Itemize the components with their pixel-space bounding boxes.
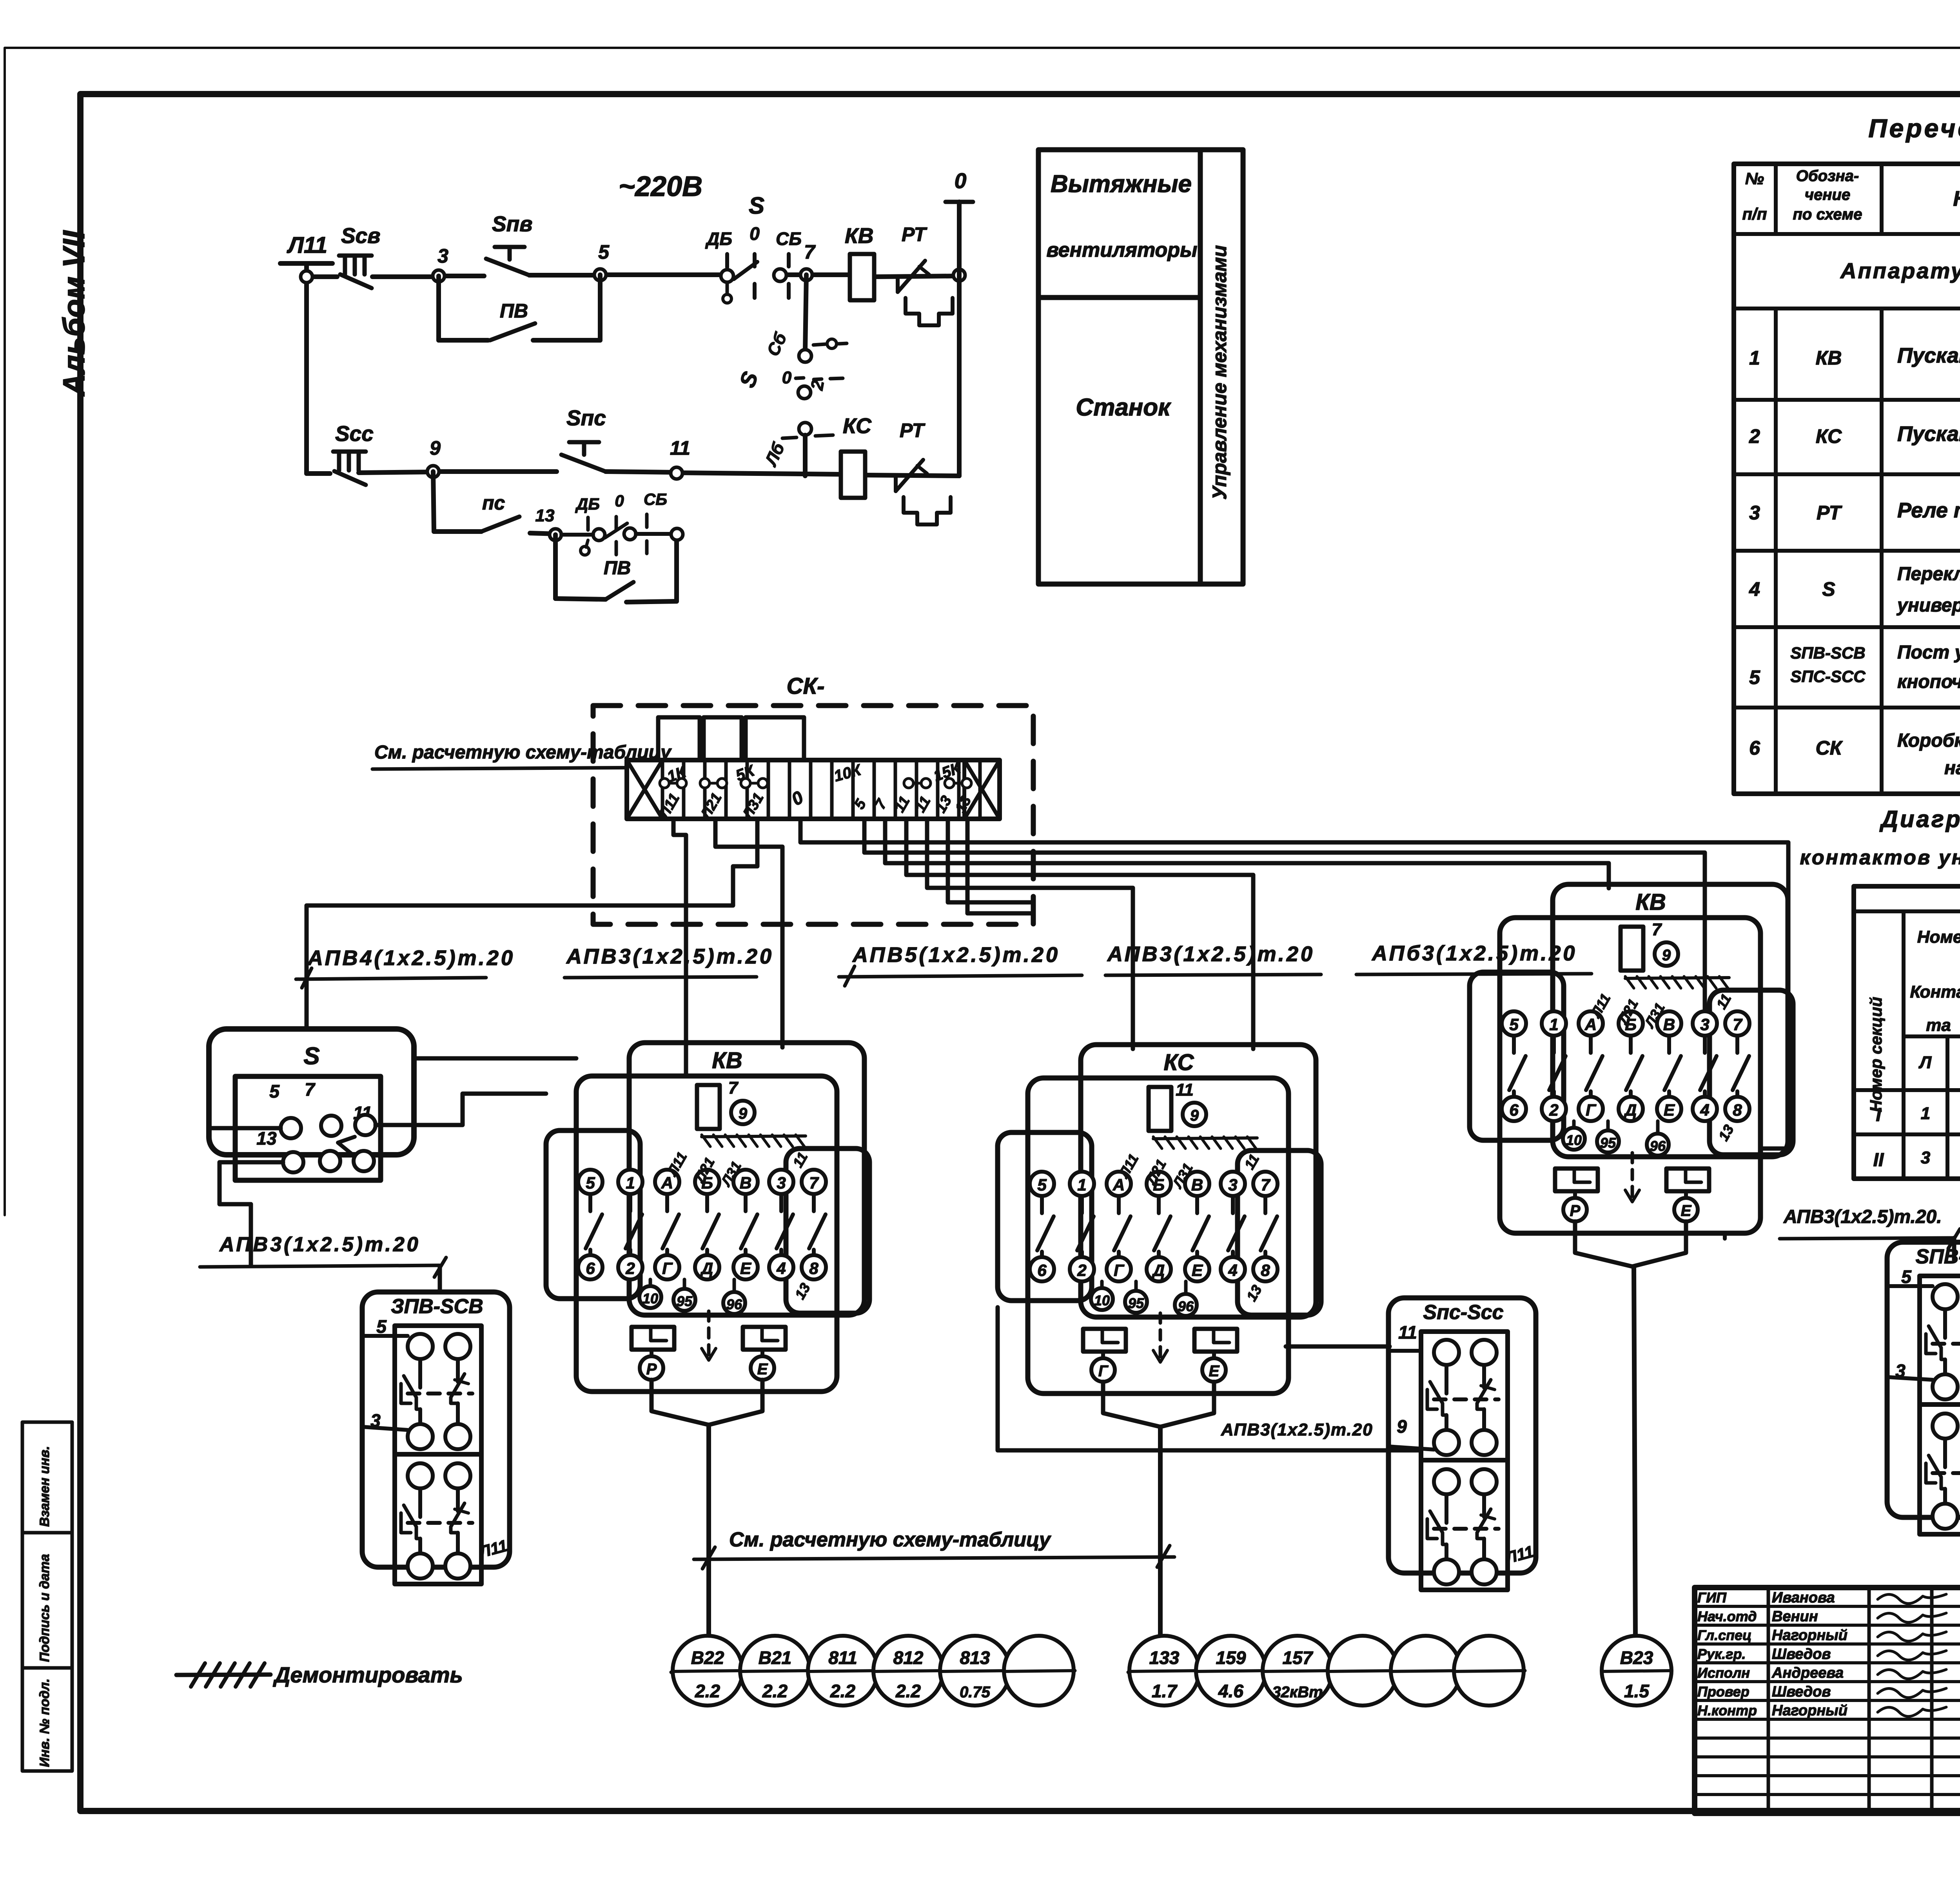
svg-text:АПб3(1х2.5)т.20: АПб3(1х2.5)т.20 — [1371, 942, 1577, 965]
svg-text:Д: Д — [1152, 1261, 1165, 1279]
svg-text:0: 0 — [782, 368, 792, 387]
svg-text:КВ: КВ — [1816, 347, 1842, 369]
svg-text:9: 9 — [430, 437, 441, 459]
svg-text:10: 10 — [1566, 1132, 1582, 1148]
svg-text:96: 96 — [726, 1296, 742, 1312]
svg-text:ГИП: ГИП — [1697, 1590, 1727, 1606]
svg-text:Г: Г — [662, 1259, 673, 1277]
svg-text:В21: В21 — [759, 1648, 791, 1668]
svg-text:7: 7 — [728, 1078, 739, 1098]
svg-text:Гл.спец: Гл.спец — [1697, 1627, 1751, 1643]
svg-text:7: 7 — [1652, 920, 1662, 939]
svg-text:Д: Д — [700, 1259, 713, 1277]
svg-text:Д: Д — [1624, 1101, 1637, 1119]
svg-text:КВ: КВ — [1635, 889, 1666, 915]
svg-text:контактов универсального пер: контактов универсального переключателя — [1800, 846, 1960, 869]
svg-text:5: 5 — [1509, 1015, 1519, 1034]
svg-text:5: 5 — [269, 1081, 280, 1101]
svg-text:АПВ3(1х2.5)т.20: АПВ3(1х2.5)т.20 — [219, 1233, 421, 1256]
svg-text:АПВ3(1х2.5)т.20: АПВ3(1х2.5)т.20 — [566, 945, 774, 968]
svg-text:9: 9 — [1662, 947, 1671, 964]
svg-text:КВ: КВ — [712, 1048, 742, 1073]
svg-text:11: 11 — [1398, 1322, 1417, 1343]
svg-text:4: 4 — [1228, 1261, 1237, 1279]
svg-text:СК-: СК- — [787, 673, 825, 699]
svg-text:Инв. № подл.: Инв. № подл. — [37, 1678, 52, 1767]
svg-text:4.6: 4.6 — [1218, 1681, 1243, 1701]
svg-text:2.2: 2.2 — [895, 1681, 921, 1701]
svg-text:КС: КС — [1164, 1050, 1194, 1075]
svg-text:АПВ3(1х2.5)т.20.: АПВ3(1х2.5)т.20. — [1783, 1207, 1942, 1227]
svg-text:~220В: ~220В — [619, 171, 702, 202]
svg-text:РТ: РТ — [902, 223, 927, 245]
svg-text:0.75: 0.75 — [960, 1684, 991, 1701]
svg-text:1.7: 1.7 — [1152, 1681, 1178, 1701]
svg-text:I: I — [1876, 1105, 1882, 1125]
svg-text:Sпс: Sпс — [566, 406, 606, 430]
svg-text:4: 4 — [1700, 1101, 1709, 1119]
svg-text:АПВ5(1х2.5)т.20: АПВ5(1х2.5)т.20 — [852, 943, 1060, 967]
svg-text:5: 5 — [1901, 1267, 1912, 1287]
svg-text:13: 13 — [535, 506, 555, 525]
svg-text:СБ: СБ — [776, 229, 802, 249]
svg-text:Нагорный: Нагорный — [1772, 1627, 1847, 1644]
svg-text:8: 8 — [1733, 1101, 1742, 1119]
svg-text:S: S — [749, 192, 764, 219]
svg-text:Наименование: Наименование — [1953, 187, 1960, 210]
svg-text:Рук.гр.: Рук.гр. — [1697, 1646, 1746, 1662]
svg-text:3: 3 — [1921, 1148, 1930, 1167]
svg-text:Г: Г — [1114, 1261, 1125, 1279]
svg-text:8: 8 — [809, 1259, 818, 1277]
svg-text:1: 1 — [1749, 347, 1760, 369]
svg-text:7: 7 — [804, 241, 816, 263]
svg-text:Андреева: Андреева — [1771, 1665, 1844, 1681]
svg-text:ЗПВ-SСВ: ЗПВ-SСВ — [391, 1295, 483, 1318]
svg-text:АПВ3(1х2.5)т.20: АПВ3(1х2.5)т.20 — [1107, 942, 1315, 966]
svg-text:КС: КС — [843, 414, 872, 438]
svg-text:Номер: Номер — [1917, 927, 1960, 947]
svg-text:ная: ная — [1944, 758, 1960, 778]
svg-text:2.2: 2.2 — [762, 1681, 788, 1701]
svg-text:В22: В22 — [691, 1648, 724, 1668]
svg-text:Sпс-Scc: Sпс-Scc — [1423, 1301, 1503, 1324]
svg-text:ПВ: ПВ — [500, 300, 528, 322]
svg-text:2: 2 — [1549, 1101, 1558, 1119]
svg-text:А: А — [1112, 1176, 1125, 1194]
svg-text:Подпись и дата: Подпись и дата — [37, 1554, 52, 1662]
svg-text:Sсс: Sсс — [335, 421, 374, 446]
svg-text:6: 6 — [1749, 737, 1760, 759]
svg-text:SПВ-SСВ: SПВ-SСВ — [1916, 1245, 1960, 1268]
svg-text:Управление механизмами: Управление механизмами — [1209, 245, 1230, 499]
svg-text:Е: Е — [1664, 1101, 1675, 1119]
svg-text:9: 9 — [1190, 1107, 1199, 1124]
svg-text:вентиляторы: вентиляторы — [1047, 239, 1198, 261]
svg-text:п/п: п/п — [1742, 205, 1767, 223]
svg-text:Иванова: Иванова — [1772, 1590, 1835, 1606]
svg-text:95: 95 — [677, 1293, 693, 1309]
svg-text:по схеме: по схеме — [1793, 206, 1862, 223]
svg-text:Аппаратура по месту: Аппаратура по месту — [1840, 258, 1960, 283]
svg-text:См. расчетную схему-таблицу: См. расчетную схему-таблицу — [729, 1528, 1052, 1551]
svg-text:2.2: 2.2 — [830, 1681, 855, 1701]
svg-text:S: S — [1822, 578, 1835, 600]
svg-text:II: II — [1873, 1150, 1884, 1170]
svg-text:Р: Р — [646, 1361, 657, 1378]
svg-text:7: 7 — [1733, 1015, 1742, 1034]
svg-text:В: В — [740, 1174, 751, 1192]
svg-text:В: В — [1191, 1176, 1203, 1194]
svg-text:7: 7 — [1261, 1176, 1270, 1194]
svg-text:ДБ: ДБ — [575, 495, 600, 513]
svg-text:Вытяжные: Вытяжные — [1051, 171, 1192, 198]
svg-text:Станок: Станок — [1076, 394, 1171, 421]
svg-text:13: 13 — [256, 1128, 277, 1149]
svg-text:Альбом VII: Альбом VII — [56, 230, 91, 397]
svg-text:Е: Е — [740, 1259, 752, 1277]
svg-text:5: 5 — [376, 1316, 387, 1337]
svg-text:Венин: Венин — [1772, 1608, 1818, 1625]
svg-text:Нач.отд: Нач.отд — [1697, 1608, 1757, 1624]
svg-text:чение: чение — [1805, 186, 1850, 203]
svg-text:Обозна-: Обозна- — [1796, 167, 1859, 185]
svg-text:96: 96 — [1178, 1298, 1194, 1314]
svg-text:кнопочный: кнопочный — [1897, 671, 1960, 692]
svg-text:5: 5 — [586, 1174, 595, 1192]
svg-text:В23: В23 — [1620, 1648, 1653, 1668]
svg-text:№: № — [1745, 169, 1764, 188]
svg-text:РТ: РТ — [900, 419, 926, 441]
svg-text:SПВ-SСВ: SПВ-SСВ — [1790, 644, 1865, 662]
svg-text:0: 0 — [955, 169, 967, 193]
svg-text:та: та — [1926, 1016, 1951, 1035]
svg-text:9: 9 — [739, 1105, 748, 1122]
svg-text:3: 3 — [437, 245, 448, 267]
svg-text:Реле тепловое: Реле тепловое — [1897, 499, 1960, 522]
svg-text:АПВ4(1х2.5)т.20: АПВ4(1х2.5)т.20 — [307, 946, 515, 970]
svg-text:6: 6 — [1037, 1261, 1047, 1279]
svg-text:5: 5 — [598, 241, 610, 263]
svg-text:157: 157 — [1283, 1648, 1314, 1668]
svg-text:2: 2 — [625, 1259, 635, 1277]
svg-text:АПВ3(1х2.5)т.20: АПВ3(1х2.5)т.20 — [1221, 1420, 1373, 1439]
svg-text:96: 96 — [1650, 1138, 1666, 1154]
svg-text:3: 3 — [1700, 1015, 1709, 1034]
svg-text:4: 4 — [1749, 578, 1760, 600]
svg-text:1.5: 1.5 — [1624, 1681, 1650, 1701]
svg-text:1: 1 — [1549, 1015, 1558, 1034]
svg-text:813: 813 — [960, 1648, 990, 1668]
svg-text:32кВm: 32кВm — [1272, 1684, 1323, 1701]
svg-text:11: 11 — [1176, 1080, 1194, 1100]
svg-text:2: 2 — [1077, 1261, 1086, 1279]
svg-text:Sпв: Sпв — [492, 212, 533, 236]
svg-text:Г: Г — [1098, 1363, 1109, 1380]
svg-text:2.2: 2.2 — [695, 1681, 720, 1701]
svg-text:811: 811 — [828, 1648, 857, 1668]
svg-text:4: 4 — [776, 1259, 786, 1277]
svg-text:Р: Р — [1570, 1202, 1581, 1219]
svg-text:11: 11 — [670, 437, 690, 459]
svg-text:3: 3 — [1228, 1176, 1237, 1194]
svg-text:133: 133 — [1149, 1648, 1180, 1668]
svg-text:А: А — [661, 1174, 673, 1192]
svg-text:Пост управления: Пост управления — [1897, 642, 1960, 663]
svg-text:9: 9 — [1397, 1416, 1407, 1437]
svg-text:1: 1 — [1921, 1104, 1930, 1123]
svg-text:Провер: Провер — [1697, 1684, 1749, 1700]
svg-text:Контак-: Контак- — [1910, 982, 1960, 1002]
svg-text:универсальный: универсальный — [1896, 595, 1960, 616]
svg-text:КВ: КВ — [845, 223, 874, 248]
svg-text:0: 0 — [615, 492, 624, 510]
svg-text:Л: Л — [1918, 1053, 1932, 1072]
svg-text:В: В — [1663, 1015, 1675, 1034]
svg-text:Нагорный: Нагорный — [1772, 1702, 1847, 1719]
svg-text:Sсв: Sсв — [341, 223, 381, 248]
svg-text:3: 3 — [777, 1174, 786, 1192]
svg-text:Пускатель магнитный: Пускатель магнитный — [1897, 344, 1960, 367]
svg-text:S: S — [303, 1043, 319, 1070]
svg-text:СБ: СБ — [644, 490, 667, 508]
svg-text:Н.контр: Н.контр — [1697, 1702, 1757, 1718]
svg-text:А: А — [1584, 1015, 1597, 1034]
svg-text:Шведов: Шведов — [1772, 1684, 1831, 1700]
svg-text:КС: КС — [1816, 425, 1842, 447]
svg-text:10: 10 — [642, 1290, 658, 1306]
svg-text:3: 3 — [1749, 502, 1760, 524]
svg-text:ДБ: ДБ — [705, 229, 732, 249]
svg-text:Е: Е — [1209, 1363, 1220, 1380]
svg-text:СК: СК — [1816, 737, 1843, 759]
svg-text:Взамен инв.: Взамен инв. — [37, 1446, 52, 1527]
svg-text:95: 95 — [1128, 1295, 1144, 1311]
svg-text:7: 7 — [305, 1079, 316, 1100]
svg-text:Е: Е — [757, 1361, 768, 1378]
svg-text:95: 95 — [1600, 1135, 1616, 1151]
svg-text:Коробка соединитель-: Коробка соединитель- — [1897, 730, 1960, 751]
svg-text:2: 2 — [1749, 425, 1760, 447]
svg-text:SПС-SСС: SПС-SСС — [1790, 667, 1866, 686]
svg-text:6: 6 — [586, 1259, 595, 1277]
svg-text:812: 812 — [893, 1648, 924, 1668]
svg-text:159: 159 — [1216, 1648, 1246, 1668]
svg-text:Пускатель магнитный: Пускатель магнитный — [1897, 422, 1960, 446]
svg-text:Демонтировать: Демонтировать — [273, 1662, 463, 1687]
svg-text:10: 10 — [1094, 1292, 1110, 1308]
svg-text:Е: Е — [1681, 1202, 1692, 1219]
svg-text:8: 8 — [1261, 1261, 1270, 1279]
svg-text:ПВ: ПВ — [604, 558, 631, 579]
svg-text:1: 1 — [626, 1174, 635, 1192]
svg-text:Л11: Л11 — [287, 232, 327, 258]
svg-text:РТ: РТ — [1817, 502, 1842, 524]
svg-text:5: 5 — [1037, 1176, 1047, 1194]
svg-text:Е: Е — [1192, 1261, 1203, 1279]
svg-text:5: 5 — [1749, 666, 1760, 688]
svg-text:Шведов: Шведов — [1772, 1646, 1831, 1662]
svg-text:Исполн: Исполн — [1697, 1665, 1750, 1681]
svg-text:Номер секций: Номер секций — [1867, 997, 1885, 1112]
svg-text:0: 0 — [750, 223, 760, 244]
svg-text:Г: Г — [1586, 1101, 1597, 1119]
svg-text:пс: пс — [482, 492, 505, 514]
svg-text:Диаграмма замыканий: Диаграмма замыканий — [1879, 806, 1960, 832]
svg-text:Переключатель,: Переключатель, — [1897, 564, 1960, 584]
svg-text:6: 6 — [1509, 1101, 1519, 1119]
svg-text:7: 7 — [809, 1174, 819, 1192]
svg-text:1: 1 — [1077, 1176, 1086, 1194]
svg-text:Перечень аппаратуры: Перечень аппаратуры — [1868, 114, 1960, 143]
